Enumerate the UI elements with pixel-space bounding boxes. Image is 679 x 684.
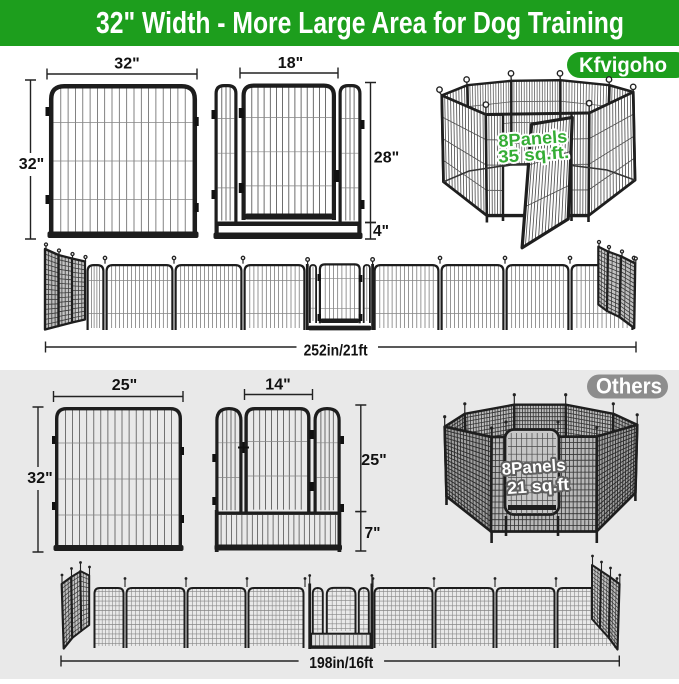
svg-text:252in/21ft: 252in/21ft — [304, 343, 368, 360]
svg-text:7": 7" — [365, 525, 381, 542]
svg-text:18": 18" — [278, 55, 303, 72]
svg-text:4": 4" — [373, 223, 389, 240]
svg-text:14": 14" — [265, 377, 290, 394]
svg-text:198in/16ft: 198in/16ft — [309, 655, 373, 672]
svg-text:32": 32" — [19, 156, 44, 173]
svg-text:28": 28" — [374, 150, 399, 167]
svg-text:25": 25" — [361, 452, 386, 469]
svg-text:32": 32" — [27, 470, 52, 487]
svg-text:Others: Others — [596, 374, 662, 399]
svg-text:32": 32" — [114, 56, 139, 73]
svg-text:32" Width - More Large Area fo: 32" Width - More Large Area for Dog Trai… — [96, 5, 624, 40]
svg-text:25": 25" — [112, 377, 137, 394]
svg-text:Kfvigoho: Kfvigoho — [579, 53, 667, 77]
